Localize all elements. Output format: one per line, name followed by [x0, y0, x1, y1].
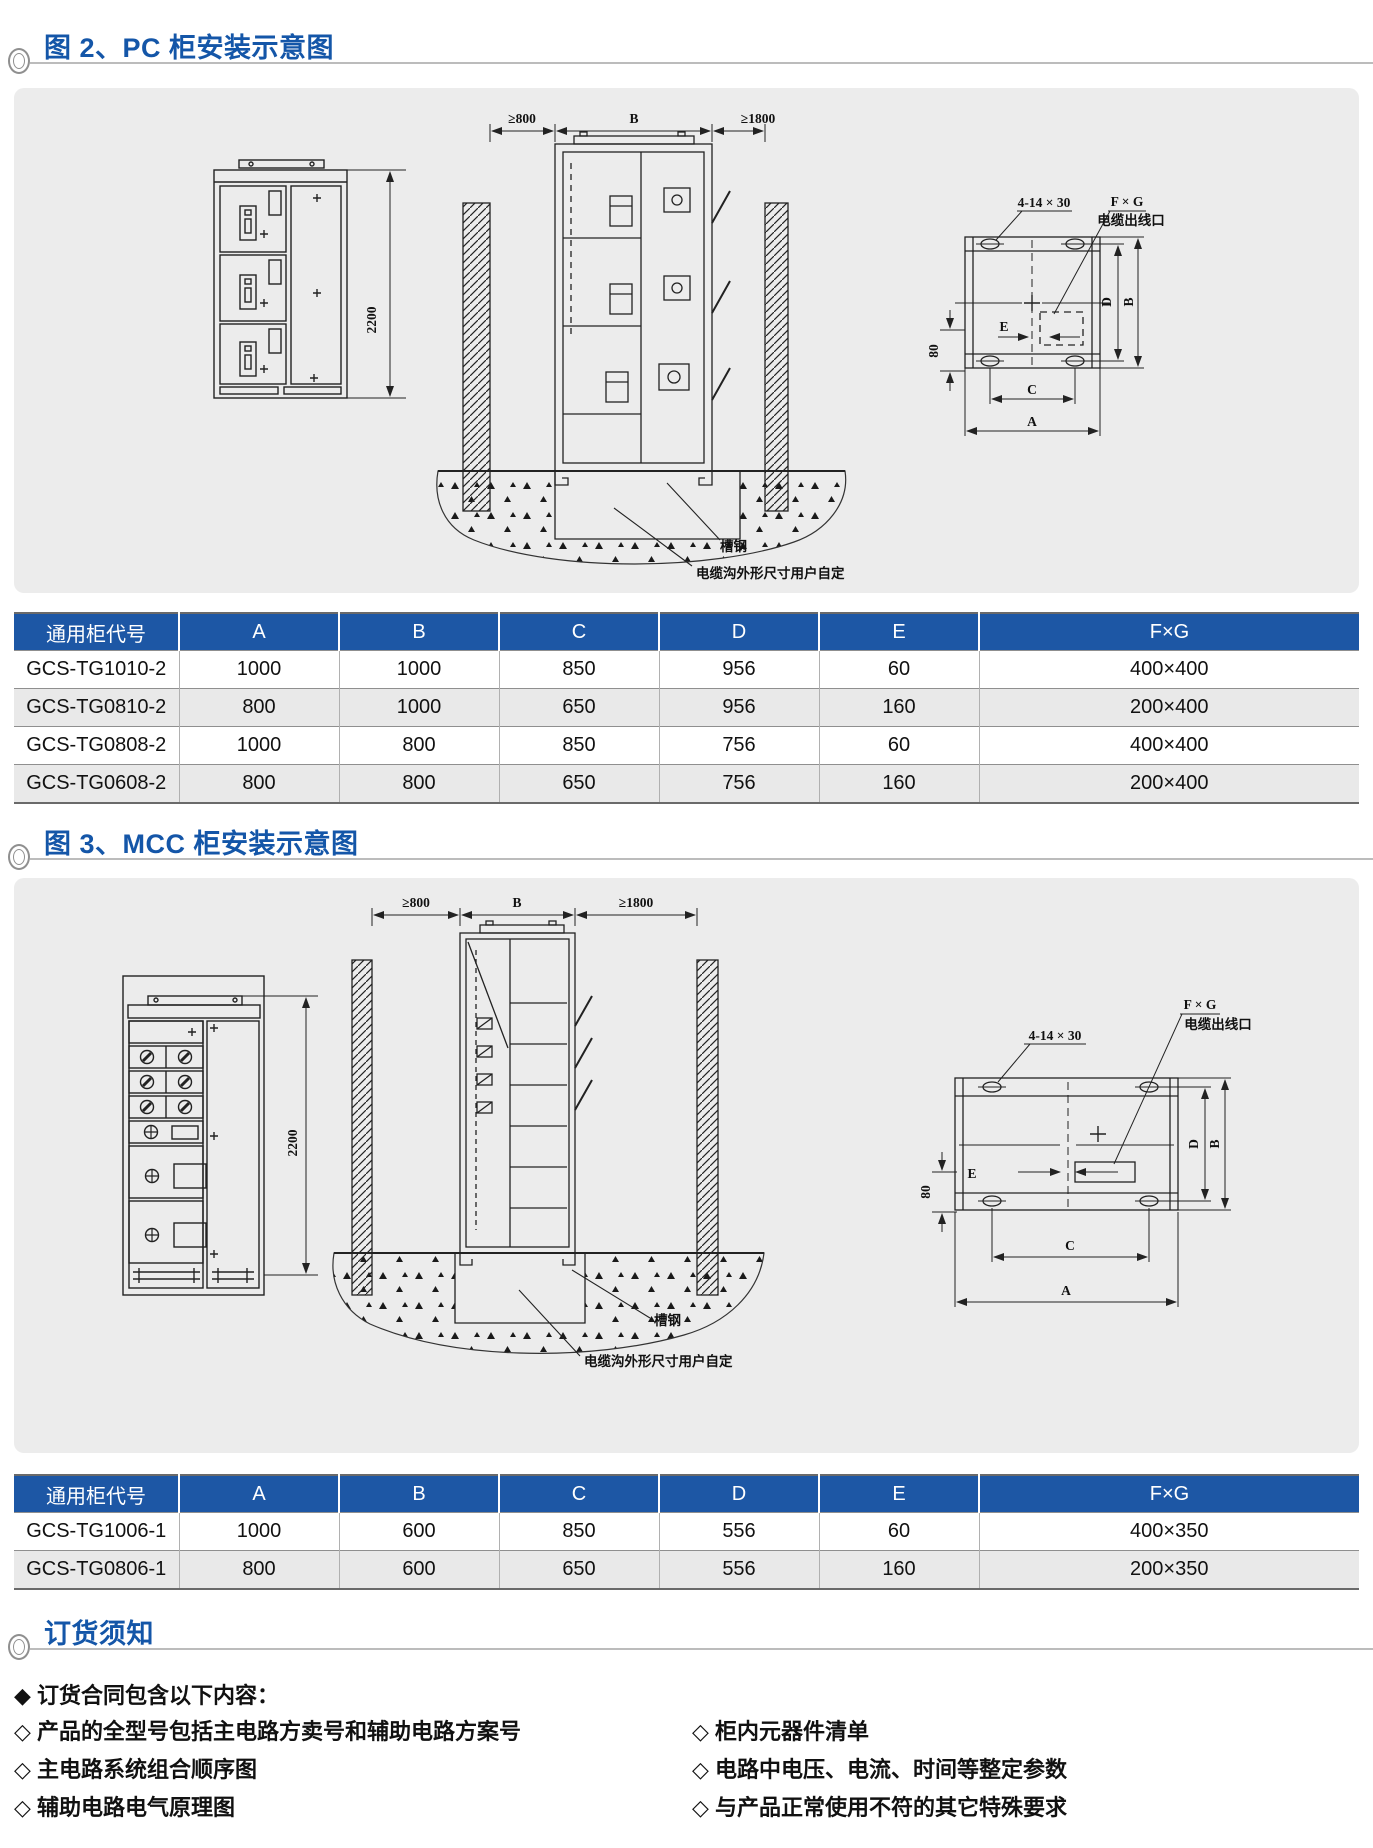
pc-foundation-plan-view [940, 211, 1146, 436]
cable-trench [455, 1253, 585, 1323]
ordering-title: 订货须知 [44, 1612, 154, 1651]
fig2-channel-steel-label: 槽钢 [720, 538, 747, 554]
fig3-top-b-label: B [512, 895, 521, 910]
cell: 850 [499, 651, 659, 689]
cell: 1000 [179, 727, 339, 765]
fig3-dim-b-label: B [1207, 1139, 1222, 1148]
fig3-trench-note-label: 电缆沟外形尺寸用户自定 [584, 1353, 733, 1369]
fig3-fxg-label: F × G [1184, 997, 1217, 1012]
cell: 60 [819, 727, 979, 765]
ordering-item: ◇ 主电路系统组合顺序图 [14, 1752, 692, 1790]
cell: 600 [339, 1513, 499, 1551]
fig3-dim-a-label: A [1061, 1283, 1071, 1298]
fig2-dim-e-label: E [999, 319, 1008, 334]
cell: 800 [179, 689, 339, 727]
pc-dimension-table: 通用柜代号 A B C D E F×G GCS-TG1010-2 1000 10… [14, 612, 1359, 804]
fig3-holes-label: 4-14 × 30 [1029, 1028, 1082, 1043]
cabinet-code: GCS-TG0808-2 [14, 727, 179, 765]
fig2-dim-d-label: D [1099, 297, 1114, 307]
col-header: D [659, 1475, 819, 1513]
fig2-dim-c-label: C [1027, 382, 1037, 397]
fig3-left-clearance-label: ≥800 [402, 895, 430, 910]
cell: 756 [659, 765, 819, 804]
col-header: A [179, 613, 339, 651]
cell: 850 [499, 727, 659, 765]
fig3-title: 图 3、MCC 柜安装示意图 [44, 822, 359, 861]
fig2-dim-a-label: A [1027, 414, 1037, 429]
fig2-holes-label: 4-14 × 30 [1018, 195, 1071, 210]
cabinet-code: GCS-TG0810-2 [14, 689, 179, 727]
table-row: GCS-TG0608-2 800 800 650 756 160 200×400 [14, 765, 1359, 804]
section-header-ordering: 订货须知 [0, 1612, 1373, 1684]
fig2-height-dim-label: 2200 [364, 306, 379, 333]
cell: 200×400 [979, 689, 1359, 727]
wall-hatch-right [765, 203, 788, 511]
col-header: F×G [979, 613, 1359, 651]
cell: 800 [179, 765, 339, 804]
col-header: A [179, 1475, 339, 1513]
fig2-dim-b-label: B [1121, 297, 1136, 306]
ring-ornament-icon [8, 1634, 30, 1660]
fig2-title: 图 2、PC 柜安装示意图 [44, 26, 334, 65]
pc-cabinet-side-view [437, 124, 846, 566]
cell: 756 [659, 727, 819, 765]
table-row: GCS-TG1010-2 1000 1000 850 956 60 400×40… [14, 651, 1359, 689]
col-header: C [499, 613, 659, 651]
catalog-page: 图 2、PC 柜安装示意图 [0, 0, 1373, 1848]
ring-ornament-icon [8, 48, 30, 74]
fig3-height-dim-label: 2200 [285, 1129, 300, 1156]
wall-hatch-left [463, 203, 490, 511]
cell: 956 [659, 651, 819, 689]
cell: 800 [179, 1551, 339, 1590]
table-row: GCS-TG1006-1 1000 600 850 556 60 400×350 [14, 1513, 1359, 1551]
ordering-item: ◇ 产品的全型号包括主电路方卖号和辅助电路方案号 [14, 1714, 692, 1752]
cell: 800 [339, 765, 499, 804]
cell: 650 [499, 689, 659, 727]
cell: 556 [659, 1551, 819, 1590]
col-header: D [659, 613, 819, 651]
col-header: 通用柜代号 [14, 613, 179, 651]
ordering-item: ◇ 柜内元器件清单 [692, 1714, 1364, 1752]
cell: 1000 [179, 651, 339, 689]
table-row: GCS-TG0810-2 800 1000 650 956 160 200×40… [14, 689, 1359, 727]
fig2-trench-note-label: 电缆沟外形尺寸用户自定 [696, 565, 845, 581]
fig3-right-clearance-label: ≥1800 [619, 895, 654, 910]
fig2-dim-80-label: 80 [926, 344, 941, 358]
fig3-dim-d-label: D [1186, 1139, 1201, 1149]
section-rule [30, 1648, 1373, 1650]
cabinet-code: GCS-TG0608-2 [14, 765, 179, 804]
cabinet-code: GCS-TG1006-1 [14, 1513, 179, 1551]
col-header: C [499, 1475, 659, 1513]
table-row: GCS-TG0808-2 1000 800 850 756 60 400×400 [14, 727, 1359, 765]
fig2-top-b-label: B [629, 111, 638, 126]
cell: 200×350 [979, 1551, 1359, 1590]
cell: 650 [499, 1551, 659, 1590]
cell: 60 [819, 1513, 979, 1551]
fig2-cable-outlet-label: 电缆出线口 [1097, 212, 1165, 228]
wall-hatch-left [352, 960, 372, 1295]
pc-cabinet-front-view [214, 160, 406, 398]
cell: 1000 [339, 651, 499, 689]
table-row: GCS-TG0806-1 800 600 650 556 160 200×350 [14, 1551, 1359, 1590]
mcc-dimension-table: 通用柜代号 A B C D E F×G GCS-TG1006-1 1000 60… [14, 1474, 1359, 1590]
table-header-row: 通用柜代号 A B C D E F×G [14, 1475, 1359, 1513]
fig3-dim-e-label: E [967, 1166, 976, 1181]
cell: 160 [819, 1551, 979, 1590]
fig3-panel: 2200 [14, 878, 1359, 1453]
cell: 160 [819, 689, 979, 727]
fig2-left-clearance-label: ≥800 [508, 111, 536, 126]
fig2-right-clearance-label: ≥1800 [741, 111, 776, 126]
ring-ornament-icon [8, 844, 30, 870]
col-header: E [819, 613, 979, 651]
cell: 850 [499, 1513, 659, 1551]
mcc-cabinet-side-view [333, 908, 764, 1356]
col-header: B [339, 1475, 499, 1513]
table-header-row: 通用柜代号 A B C D E F×G [14, 613, 1359, 651]
cabinet-code: GCS-TG1010-2 [14, 651, 179, 689]
col-header: B [339, 613, 499, 651]
cell: 650 [499, 765, 659, 804]
cell: 1000 [339, 689, 499, 727]
cell: 400×400 [979, 727, 1359, 765]
ordering-item: ◇ 辅助电路电气原理图 [14, 1790, 692, 1828]
ordering-item: ◇ 与产品正常使用不符的其它特殊要求 [692, 1790, 1364, 1828]
fig3-dim-80-label: 80 [918, 1185, 933, 1199]
ordering-item: ◇ 电路中电压、电流、时间等整定参数 [692, 1752, 1364, 1790]
mcc-installation-drawing: 2200 [14, 878, 1359, 1453]
fig3-dim-c-label: C [1065, 1238, 1075, 1253]
mcc-foundation-plan-view [932, 1014, 1231, 1307]
fig2-fxg-label: F × G [1111, 194, 1144, 209]
cell: 600 [339, 1551, 499, 1590]
pc-installation-drawing: 2200 [14, 88, 1359, 593]
fig3-cable-outlet-label: 电缆出线口 [1184, 1016, 1252, 1032]
cell: 1000 [179, 1513, 339, 1551]
cabinet-code: GCS-TG0806-1 [14, 1551, 179, 1590]
cell: 800 [339, 727, 499, 765]
cell: 556 [659, 1513, 819, 1551]
ordering-items: ◇ 产品的全型号包括主电路方卖号和辅助电路方案号 ◇ 柜内元器件清单 ◇ 主电路… [14, 1714, 1364, 1828]
cell: 956 [659, 689, 819, 727]
fig3-channel-steel-label: 槽钢 [654, 1312, 681, 1328]
cell: 400×400 [979, 651, 1359, 689]
col-header: E [819, 1475, 979, 1513]
cell: 200×400 [979, 765, 1359, 804]
cell: 60 [819, 651, 979, 689]
col-header: F×G [979, 1475, 1359, 1513]
fig2-panel: 2200 [14, 88, 1359, 593]
col-header: 通用柜代号 [14, 1475, 179, 1513]
wall-hatch-right [697, 960, 718, 1295]
ordering-heading: ◆ 订货合同包含以下内容： [14, 1678, 279, 1710]
cell: 400×350 [979, 1513, 1359, 1551]
cell: 160 [819, 765, 979, 804]
